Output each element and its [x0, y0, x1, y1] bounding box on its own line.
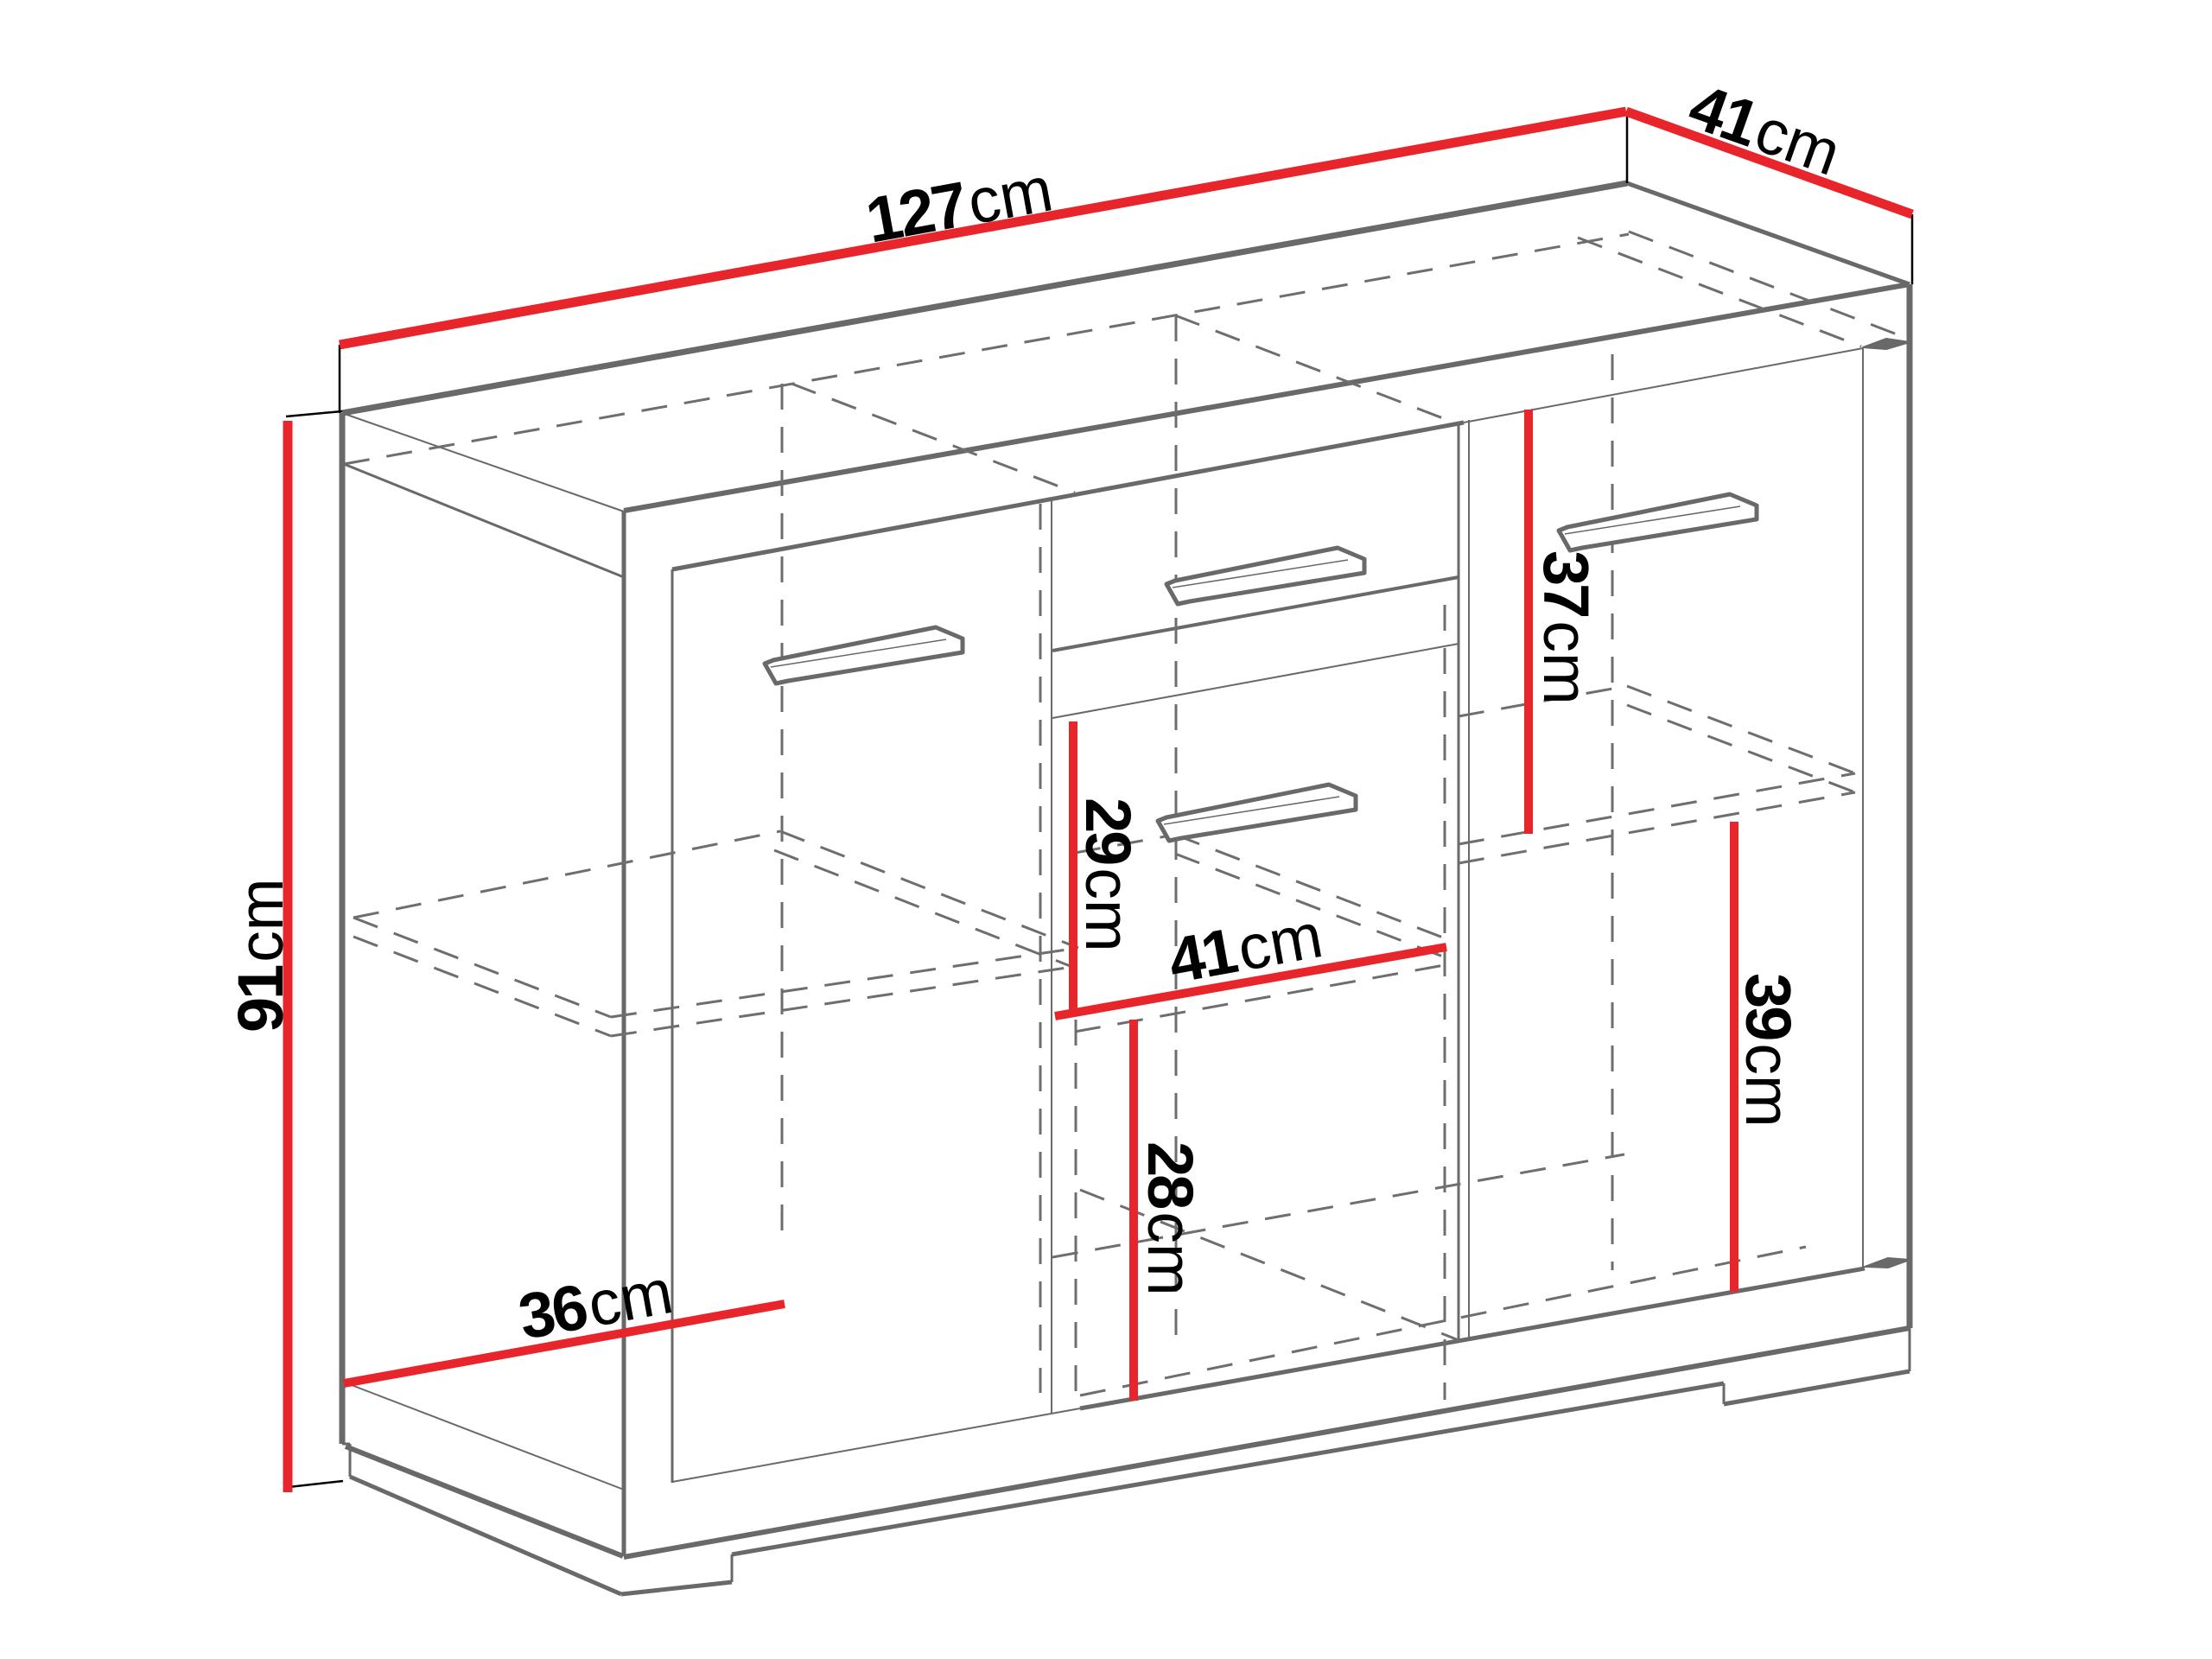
svg-text:29cm: 29cm — [1072, 798, 1144, 952]
svg-text:39cm: 39cm — [1732, 973, 1804, 1128]
svg-text:37cm: 37cm — [1530, 550, 1602, 705]
svg-text:28cm: 28cm — [1135, 1141, 1206, 1296]
svg-text:91cm: 91cm — [225, 878, 296, 1033]
